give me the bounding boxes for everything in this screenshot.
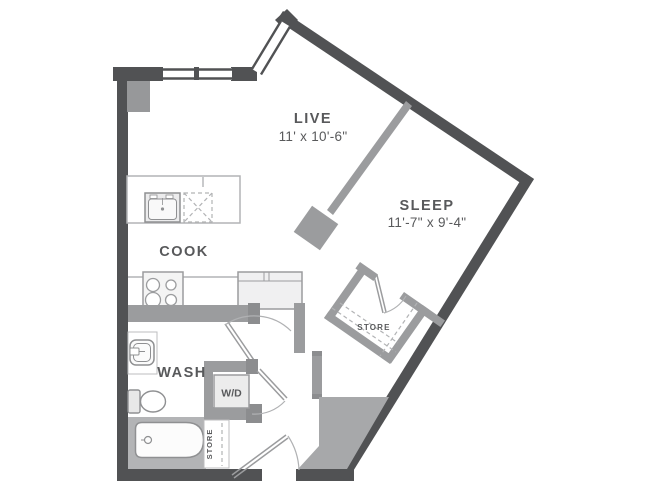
sink-tap	[150, 195, 157, 199]
sleep-room-label: SLEEP	[399, 198, 454, 214]
bathroom-sink-tap	[130, 348, 139, 355]
sink-drain	[161, 207, 164, 210]
hall-storage: STORE	[204, 420, 229, 468]
sink-tap	[166, 195, 173, 199]
wd-wall-bottom	[204, 407, 253, 420]
structural-column	[127, 81, 150, 112]
wd-label: W/D	[221, 388, 242, 400]
kitchen-island	[127, 176, 240, 223]
wall-end-cap	[312, 351, 322, 356]
kitchen-sink	[145, 193, 180, 222]
refrigerator	[238, 272, 302, 309]
wall-bottom-left	[117, 469, 262, 481]
kitchen-bath-wall	[128, 305, 248, 322]
hall-store-label: STORE	[205, 429, 214, 460]
bathtub	[128, 417, 206, 469]
hall-wall-upper	[294, 303, 305, 353]
bedroom-store-label: STORE	[357, 323, 390, 332]
floor-plan-canvas: W/D STORE STOR	[0, 0, 650, 490]
bathroom-vanity	[128, 332, 157, 374]
sleep-room-dims: 11'-7" x 9'-4"	[388, 215, 467, 230]
burner	[147, 279, 160, 292]
live-room-label: LIVE	[294, 111, 332, 127]
toilet-tank	[128, 390, 140, 413]
live-room-dims: 11' x 10'-6"	[279, 129, 348, 144]
floor-plan: W/D STORE STOR	[0, 0, 650, 490]
range	[143, 272, 183, 308]
wash-room-label: WASH	[157, 365, 207, 381]
burner	[166, 295, 177, 306]
toilet	[128, 390, 166, 413]
wall-left	[117, 67, 128, 481]
cook-room-label: COOK	[159, 244, 209, 260]
window-mullion	[194, 67, 199, 80]
wall-end-cap	[248, 303, 260, 324]
wall-end-cap	[246, 359, 258, 374]
burner	[166, 280, 176, 290]
toilet-bowl	[141, 391, 166, 412]
tub	[136, 423, 204, 458]
refrigerator-outline	[238, 272, 302, 309]
hall-wall-lower	[312, 351, 322, 399]
